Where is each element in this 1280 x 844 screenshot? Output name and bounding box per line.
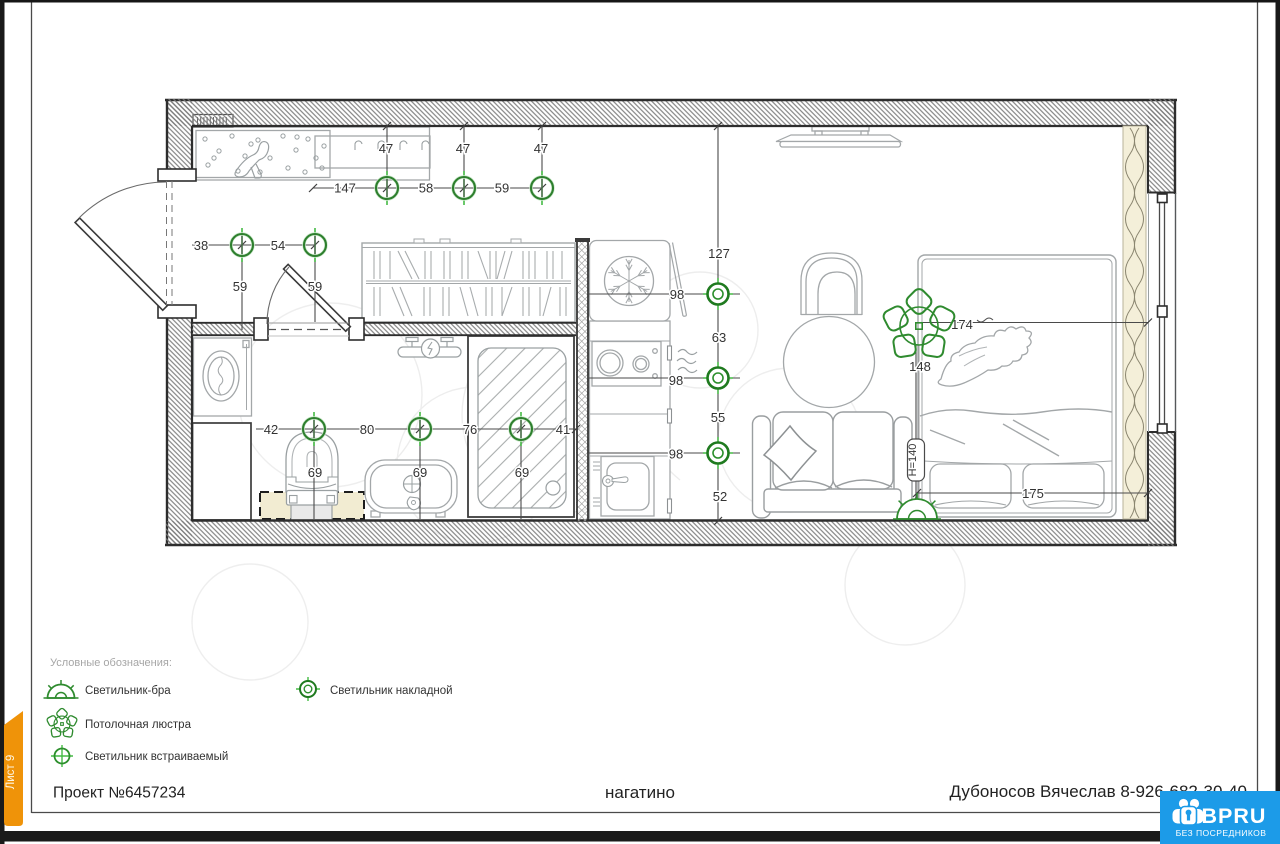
svg-text:41: 41 [556, 422, 570, 437]
svg-text:69: 69 [413, 465, 427, 480]
svg-text:H=140: H=140 [907, 444, 919, 477]
svg-text:Проект №6457234: Проект №6457234 [53, 785, 186, 802]
svg-text:98: 98 [669, 447, 683, 462]
svg-text:нагатино: нагатино [605, 783, 675, 802]
svg-text:69: 69 [515, 465, 529, 480]
svg-text:Лист 9: Лист 9 [5, 755, 17, 790]
svg-text:47: 47 [534, 141, 548, 156]
svg-text:Светильник накладной: Светильник накладной [330, 685, 453, 697]
svg-text:BPRU: BPRU [1202, 804, 1267, 828]
svg-text:59: 59 [233, 279, 247, 294]
svg-text:76: 76 [463, 422, 477, 437]
svg-text:98: 98 [670, 287, 684, 302]
svg-text:55: 55 [711, 410, 725, 425]
svg-text:54: 54 [271, 238, 285, 253]
svg-text:42: 42 [264, 422, 278, 437]
svg-text:52: 52 [713, 489, 727, 504]
svg-text:59: 59 [495, 181, 509, 196]
svg-text:Светильник-бра: Светильник-бра [85, 685, 171, 697]
svg-text:98: 98 [669, 373, 683, 388]
svg-text:47: 47 [456, 141, 470, 156]
svg-text:148: 148 [909, 359, 931, 374]
svg-text:175: 175 [1022, 486, 1044, 501]
svg-text:80: 80 [360, 422, 374, 437]
svg-text:63: 63 [712, 330, 726, 345]
svg-text:Светильник встраиваемый: Светильник встраиваемый [85, 751, 228, 763]
svg-text:147: 147 [334, 181, 356, 196]
svg-text:Условные обозначения:: Условные обозначения: [50, 657, 172, 669]
svg-text:БЕЗ ПОСРЕДНИКОВ: БЕЗ ПОСРЕДНИКОВ [1176, 828, 1267, 838]
svg-text:127: 127 [708, 246, 730, 261]
svg-text:69: 69 [308, 465, 322, 480]
svg-text:38: 38 [194, 238, 208, 253]
svg-text:59: 59 [308, 279, 322, 294]
svg-text:58: 58 [419, 181, 433, 196]
svg-text:47: 47 [379, 141, 393, 156]
svg-text:Потолочная люстра: Потолочная люстра [85, 719, 192, 731]
